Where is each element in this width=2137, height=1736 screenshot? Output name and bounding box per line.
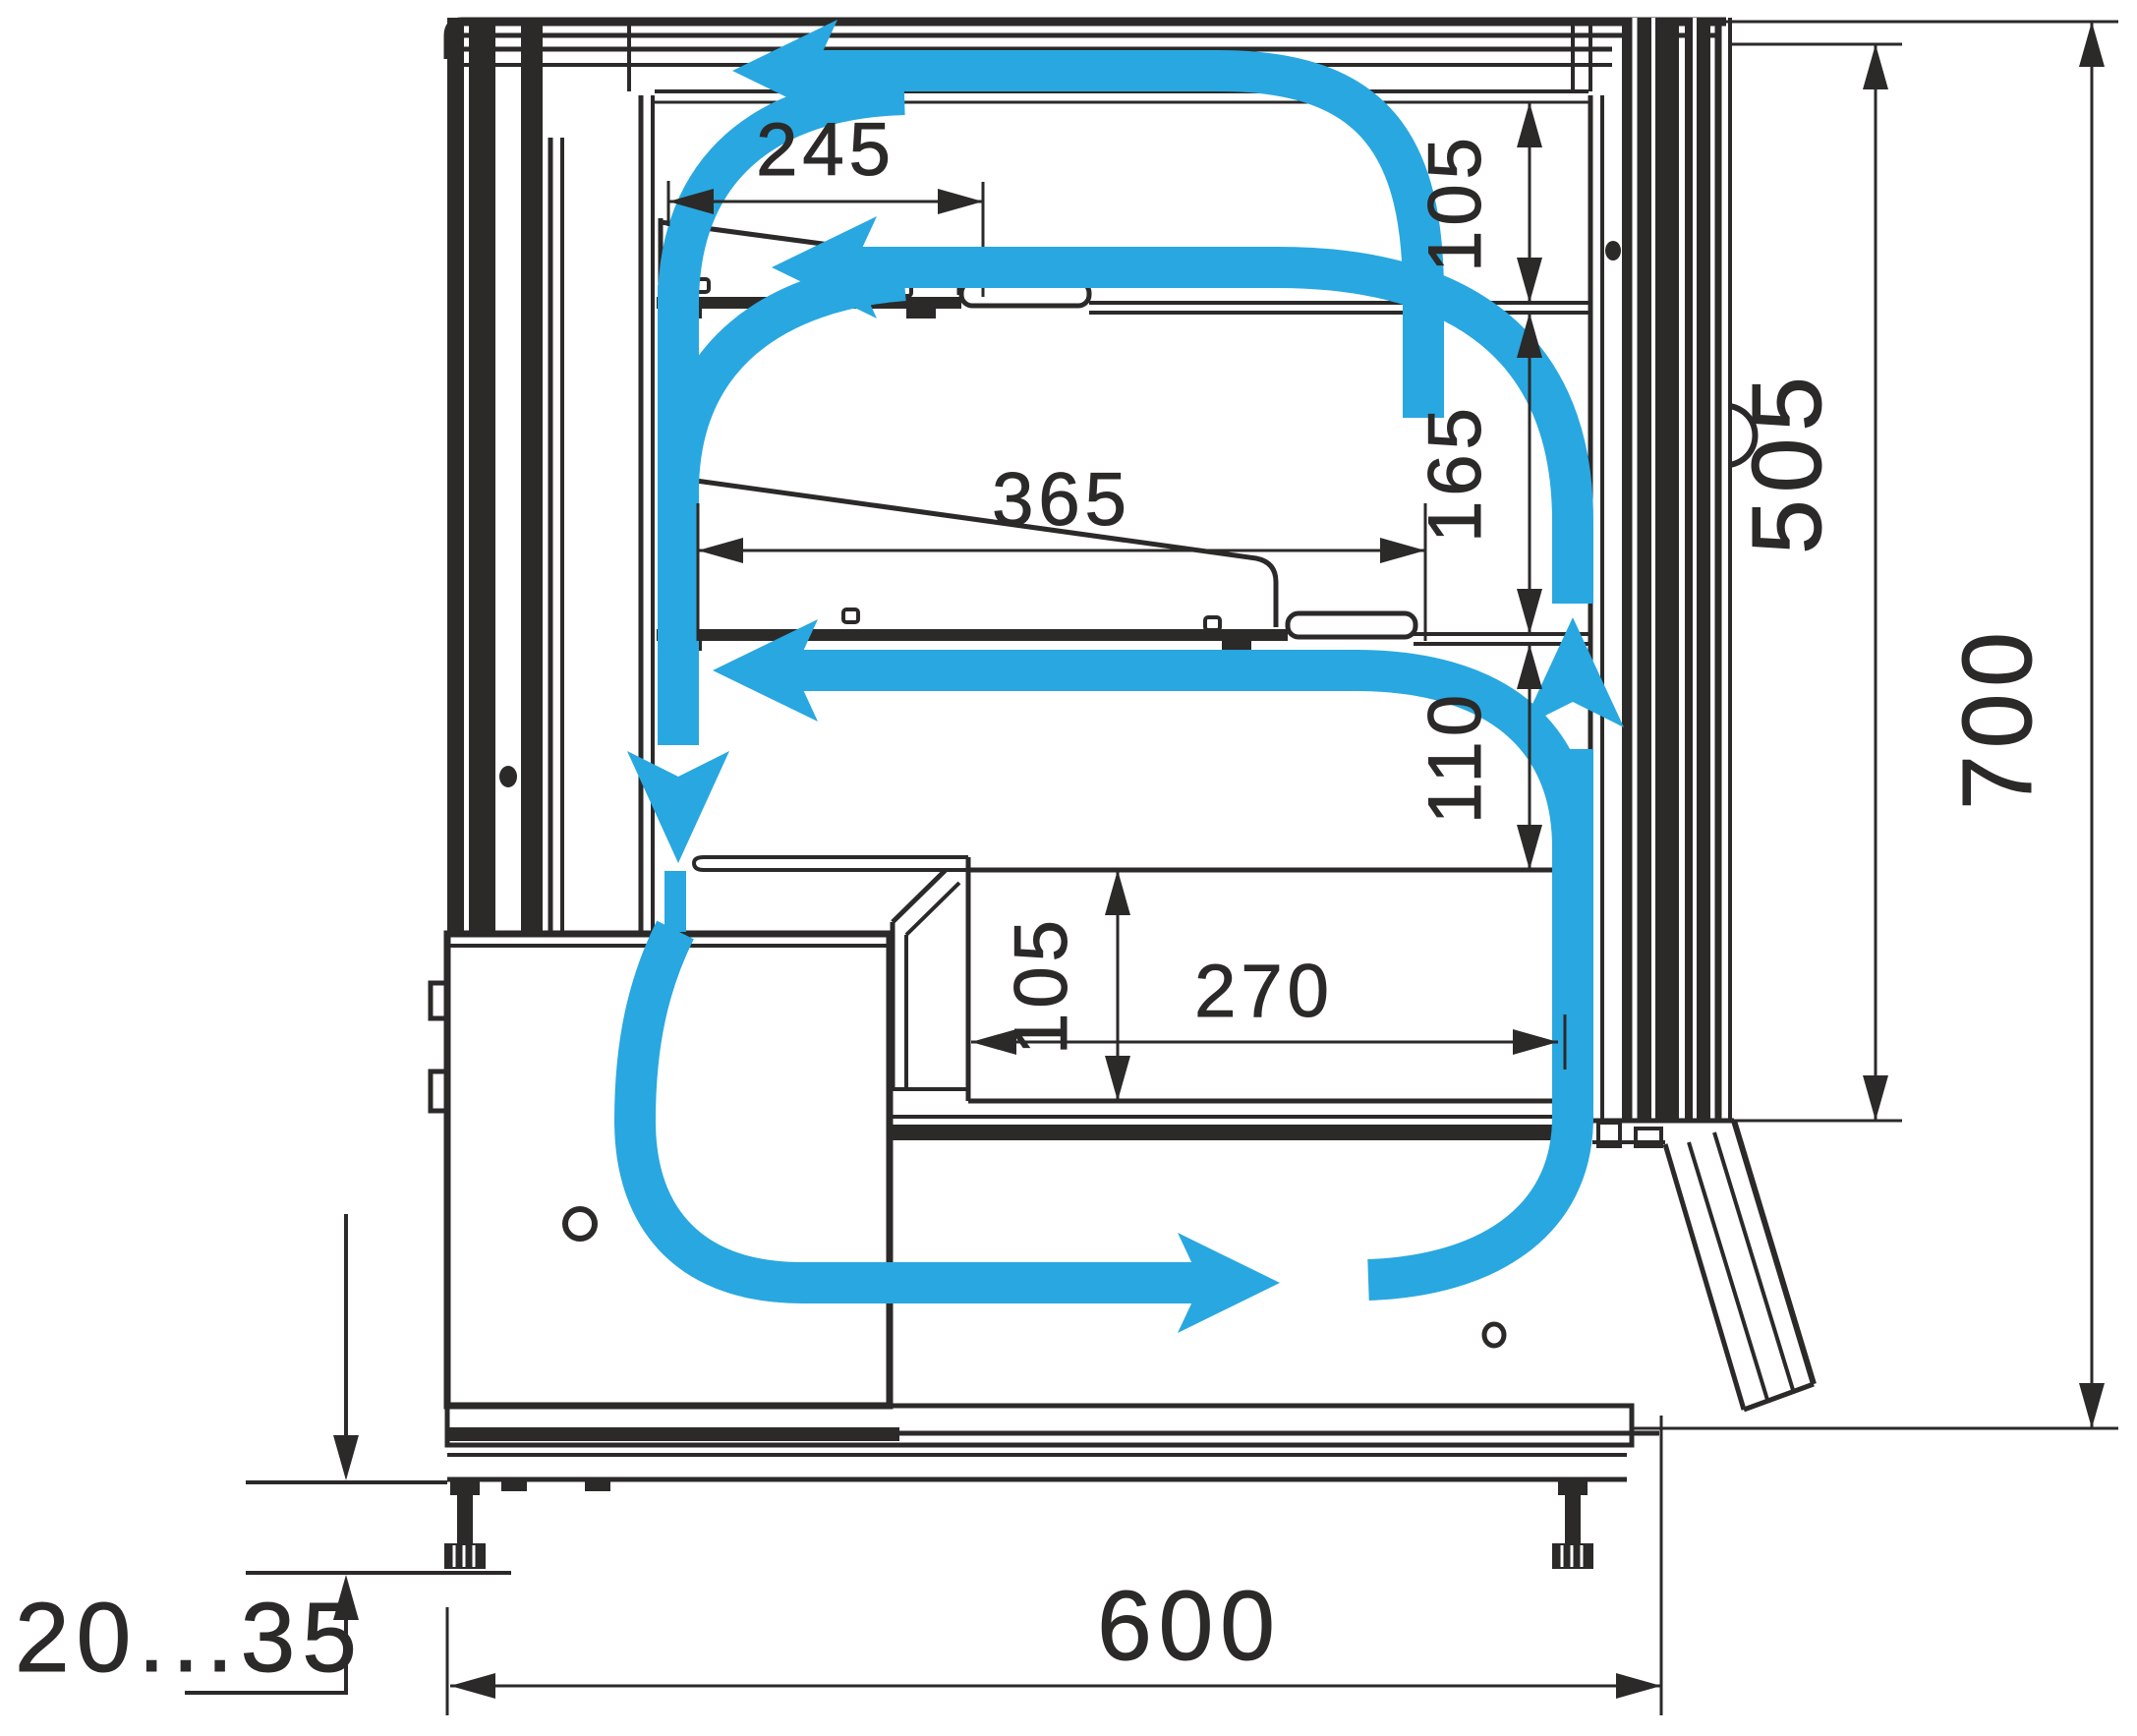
display-case-section-drawing: 245 105 365 165 — [0, 0, 2137, 1736]
front-frame-screw — [1605, 241, 1621, 260]
middle-shelf-bracket — [1288, 613, 1415, 637]
counter-and-well — [694, 857, 1590, 1140]
dim-label-middle-shelf-depth: 365 — [992, 458, 1131, 542]
adjustable-foot-right — [1552, 1479, 1593, 1569]
compartment-screw — [565, 1209, 595, 1239]
dim-label-lower-air-gap: 110 — [1414, 690, 1497, 824]
dim-label-top-shelf-depth: 245 — [756, 108, 895, 192]
dimension-505: 505 — [1728, 44, 1902, 1121]
front-glass-frame — [1590, 18, 1756, 1121]
dimension-105-well: 105 — [1000, 870, 1130, 1101]
dim-label-middle-air-gap: 165 — [1414, 403, 1497, 543]
back-panel-screw — [499, 766, 517, 787]
back-panel — [447, 18, 653, 934]
panel-screw — [1484, 1324, 1504, 1346]
front-upflow-lower — [1368, 749, 1573, 1280]
dim-label-display-opening-height: 505 — [1732, 370, 1842, 554]
dim-label-overall-depth: 600 — [1097, 1571, 1282, 1681]
dim-label-leg-adjustment-range: 20...35 — [15, 1583, 364, 1693]
dim-label-top-air-gap: 105 — [1414, 133, 1497, 272]
slanted-front-panel — [1484, 1121, 1814, 1410]
dimension-600: 600 — [447, 1416, 1661, 1715]
dimension-leg-range: 20...35 — [15, 1214, 364, 1693]
drawing-canvas: 245 105 365 165 — [0, 0, 2137, 1736]
base-duct-curve — [635, 930, 1219, 1283]
dim-label-overall-height: 700 — [1942, 625, 2052, 810]
dim-label-well-length: 270 — [1194, 950, 1334, 1033]
adjustable-foot-left — [444, 1479, 486, 1569]
dimension-105-top: 105 — [1414, 102, 1542, 303]
